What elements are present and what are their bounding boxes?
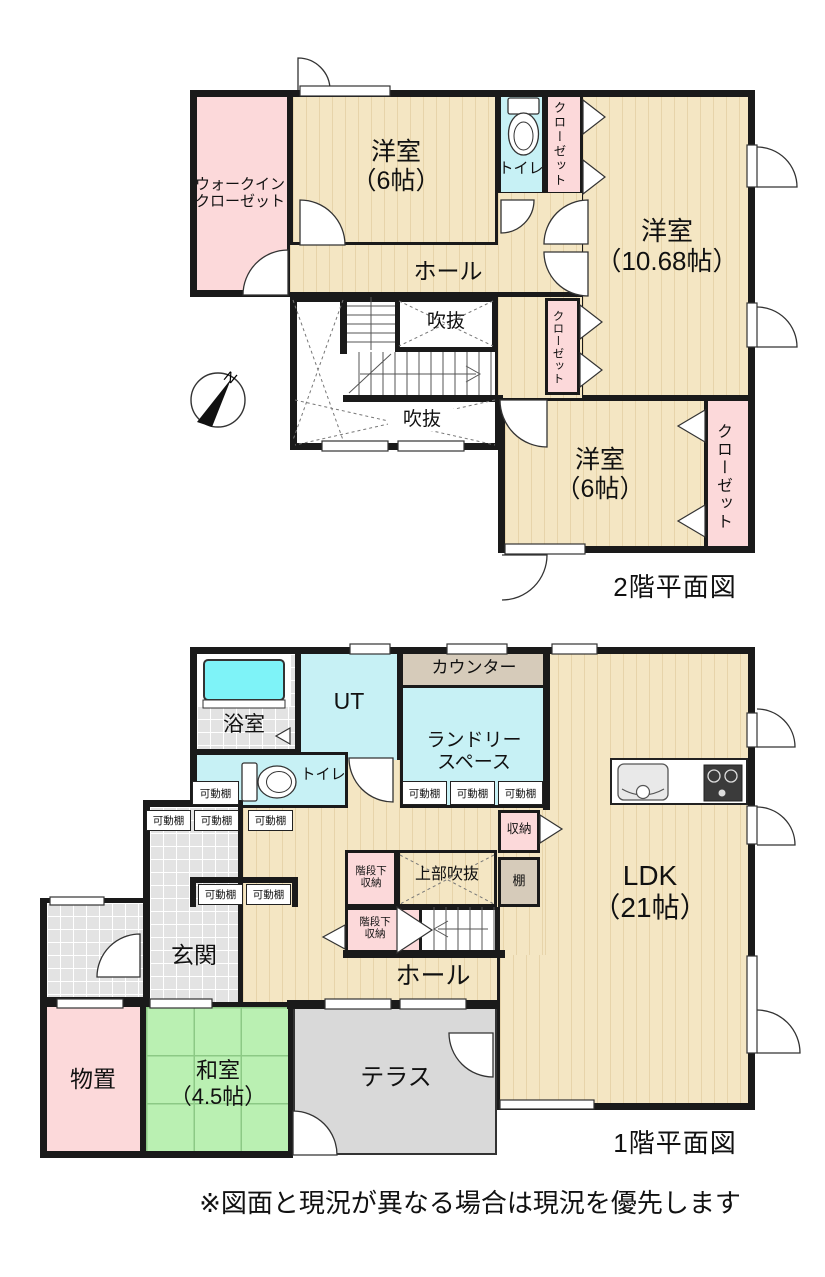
floorplan-canvas: N 可動棚 可動棚 可動棚 可動棚 可動棚 可動棚 可動棚 可動棚	[0, 0, 825, 1277]
movable-shelf-label: 可動棚	[505, 786, 537, 801]
label-2f-void-1: 吹抜	[397, 311, 495, 333]
movable-shelf-box: 可動棚	[194, 810, 239, 831]
door-arc	[500, 400, 547, 447]
closet-door-icon	[540, 815, 562, 843]
window	[322, 441, 388, 451]
door-arc	[757, 307, 797, 347]
door-arc	[293, 1111, 337, 1155]
label-1f-ldk: LDK （21帖）	[562, 860, 738, 925]
label-1f-toilet: トイレ	[295, 766, 351, 783]
label-2f-wic: ウォークイン クローゼット	[190, 176, 290, 211]
movable-shelf-box: 可動棚	[198, 884, 243, 905]
window	[552, 644, 597, 654]
movable-shelf-label: 可動棚	[255, 813, 287, 828]
door-arc	[97, 934, 140, 977]
closet-door-icon	[583, 160, 605, 194]
door-arc	[757, 147, 797, 187]
door-arc	[298, 58, 330, 90]
label-2f-west-room-6-se: 洋室 （6帖）	[535, 446, 665, 504]
bathtub-ledge	[203, 700, 285, 708]
window	[57, 999, 123, 1008]
label-1f-bath: 浴室	[198, 713, 290, 737]
door-arc	[501, 200, 534, 233]
movable-shelf-box: 可動棚	[402, 781, 447, 805]
closet-door-icon	[580, 353, 602, 387]
closet-door-icon	[580, 305, 602, 339]
label-1f-entrance: 玄関	[150, 942, 238, 969]
label-1f-upper-void: 上部吹抜	[399, 866, 495, 885]
window	[747, 145, 757, 187]
movable-shelf-label: 可動棚	[200, 786, 232, 801]
toilet-icon-1f	[242, 763, 296, 801]
window	[350, 644, 390, 654]
window	[500, 1100, 594, 1109]
door-arc	[243, 250, 288, 295]
movable-shelf-label: 可動棚	[205, 887, 237, 902]
movable-shelf-label: 可動棚	[409, 786, 441, 801]
window	[398, 441, 464, 451]
movable-shelf-label: 可動棚	[201, 813, 233, 828]
door-arc	[349, 758, 393, 802]
title-floor1: 1階平面図	[590, 1128, 760, 1158]
closet-door-icon	[583, 100, 605, 134]
window	[747, 303, 757, 347]
label-2f-void-2: 吹抜	[388, 409, 456, 431]
movable-shelf-box: 可動棚	[248, 810, 293, 831]
label-1f-storage: 収納	[498, 822, 540, 837]
void-dashed-lines	[293, 300, 495, 904]
kitchen-sink-icon	[618, 764, 668, 800]
label-2f-west-room-1068: 洋室 （10.68帖）	[582, 216, 752, 276]
window	[400, 999, 466, 1009]
closet-door-icon	[323, 925, 345, 949]
label-1f-terrace: テラス	[328, 1064, 464, 1092]
disclaimer-note: ※図面と現況が異なる場合は現況を優先します	[160, 1188, 780, 1218]
label-2f-closet-top: クローゼット	[552, 97, 565, 192]
window	[325, 999, 391, 1009]
door-arc	[757, 807, 795, 845]
window	[300, 86, 390, 96]
label-2f-closet-right: クローゼット	[714, 416, 730, 538]
door-arc	[502, 555, 547, 600]
closet-door-icon	[678, 410, 705, 442]
label-1f-laundry: ランドリー スペース	[404, 730, 544, 774]
label-1f-understair-2: 階段下 収納	[347, 916, 403, 940]
movable-shelf-box: 可動棚	[450, 781, 495, 805]
movable-shelf-box: 可動棚	[246, 884, 291, 905]
label-1f-shelf: 棚	[498, 873, 540, 888]
label-2f-hall: ホール	[398, 258, 498, 285]
door-arc	[300, 200, 345, 245]
window	[747, 806, 757, 844]
movable-shelf-label: 可動棚	[253, 887, 285, 902]
label-1f-ut: UT	[320, 688, 378, 715]
closet-door-icon	[678, 505, 705, 537]
title-floor2: 2階平面図	[590, 572, 760, 602]
window	[447, 644, 507, 654]
movable-shelf-box: 可動棚	[498, 781, 543, 805]
window	[50, 897, 104, 905]
label-1f-storage-room: 物置	[53, 1066, 133, 1093]
door-arc	[757, 1010, 800, 1053]
toilet-icon-2f	[508, 98, 539, 155]
label-2f-toilet: トイレ	[494, 160, 548, 177]
stove-icon	[704, 765, 742, 801]
movable-shelf-box: 可動棚	[146, 810, 191, 831]
stair-treads	[347, 297, 494, 950]
label-1f-japanese-room: 和室 （4.5帖）	[150, 1058, 286, 1109]
label-1f-understair-1: 階段下 収納	[345, 865, 397, 889]
compass-icon: N	[191, 368, 245, 427]
window	[747, 956, 757, 1053]
window	[150, 999, 212, 1008]
movable-shelf-label: 可動棚	[153, 813, 185, 828]
window	[747, 713, 757, 747]
label-1f-hall: ホール	[368, 962, 498, 991]
door-arc	[757, 709, 795, 747]
movable-shelf-label: 可動棚	[457, 786, 489, 801]
window	[505, 544, 585, 554]
label-1f-counter: カウンター	[402, 658, 546, 678]
label-2f-closet-mid: クローゼット	[551, 304, 563, 390]
label-2f-west-room-6-top: 洋室 （6帖）	[338, 138, 454, 196]
movable-shelf-box: 可動棚	[192, 781, 239, 805]
